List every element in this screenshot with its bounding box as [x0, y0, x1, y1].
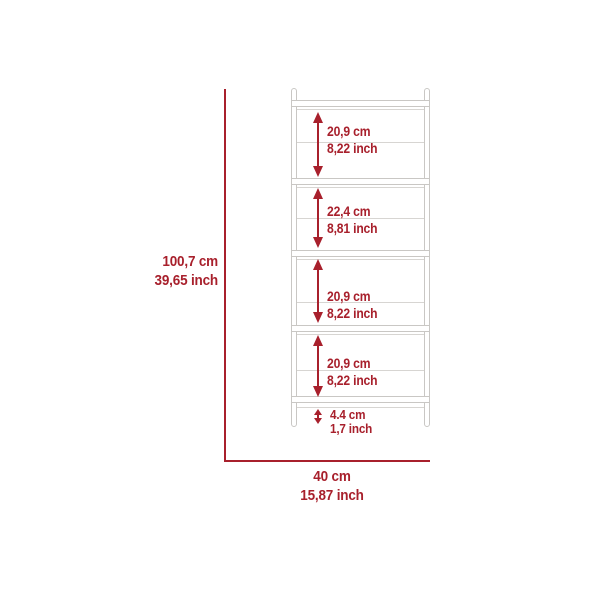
section-2-dimension-arrow [312, 188, 324, 248]
section-3-cm: 20,9 cm [327, 288, 377, 305]
section-1-dimension-arrow [312, 112, 324, 177]
section-3-dimension-arrow [312, 259, 324, 323]
arrow-down-icon [313, 166, 323, 177]
arrow-up-icon [313, 335, 323, 346]
shelf-board-1 [291, 100, 430, 107]
shelf-board-2 [291, 178, 430, 185]
shelf-board-4 [291, 325, 430, 332]
arrow-shaft [317, 346, 319, 386]
base-clearance-dimension-arrow [312, 409, 324, 424]
overall-width-extent-line [224, 460, 430, 462]
overall-height-inch: 39,65 inch [76, 271, 218, 290]
overall-width-cm: 40 cm [242, 467, 422, 486]
arrow-shaft [317, 123, 319, 166]
overall-height-cm: 100,7 cm [76, 252, 218, 271]
arrow-up-icon [313, 188, 323, 199]
section-3-inch: 8,22 inch [327, 305, 377, 322]
overall-width-inch: 15,87 inch [242, 486, 422, 505]
section-4-label: 20,9 cm 8,22 inch [327, 355, 377, 389]
arrow-shaft [317, 270, 319, 312]
base-clearance-label: 4.4 cm 1,7 inch [330, 408, 372, 435]
base-clearance-cm: 4.4 cm [330, 408, 372, 422]
overall-height-extent-line [224, 89, 226, 462]
shelf-1-underline [297, 109, 424, 110]
section-4-cm: 20,9 cm [327, 355, 377, 372]
arrow-down-icon [313, 386, 323, 397]
arrow-down-icon [313, 312, 323, 323]
section-4-inch: 8,22 inch [327, 372, 377, 389]
dimension-diagram: 100,7 cm 39,65 inch 40 cm 15,87 inch [0, 0, 600, 600]
arrow-shaft [317, 199, 319, 237]
overall-width-label: 40 cm 15,87 inch [242, 467, 422, 505]
section-2-inch: 8,81 inch [327, 220, 377, 237]
section-1-inch: 8,22 inch [327, 140, 377, 157]
section-4-dimension-arrow [312, 335, 324, 397]
section-1-label: 20,9 cm 8,22 inch [327, 123, 377, 157]
shelf-board-5 [291, 396, 430, 403]
section-2-label: 22,4 cm 8,81 inch [327, 203, 377, 237]
bookshelf-left-post [291, 88, 297, 427]
base-clearance-inch: 1,7 inch [330, 422, 372, 436]
bookshelf-right-post [424, 88, 430, 427]
arrow-down-icon [314, 418, 322, 424]
arrow-up-icon [313, 259, 323, 270]
section-1-cm: 20,9 cm [327, 123, 377, 140]
section-2-cm: 22,4 cm [327, 203, 377, 220]
arrow-down-icon [313, 237, 323, 248]
shelf-board-3 [291, 250, 430, 257]
section-3-label: 20,9 cm 8,22 inch [327, 288, 377, 322]
overall-height-label: 100,7 cm 39,65 inch [76, 252, 218, 290]
arrow-up-icon [313, 112, 323, 123]
